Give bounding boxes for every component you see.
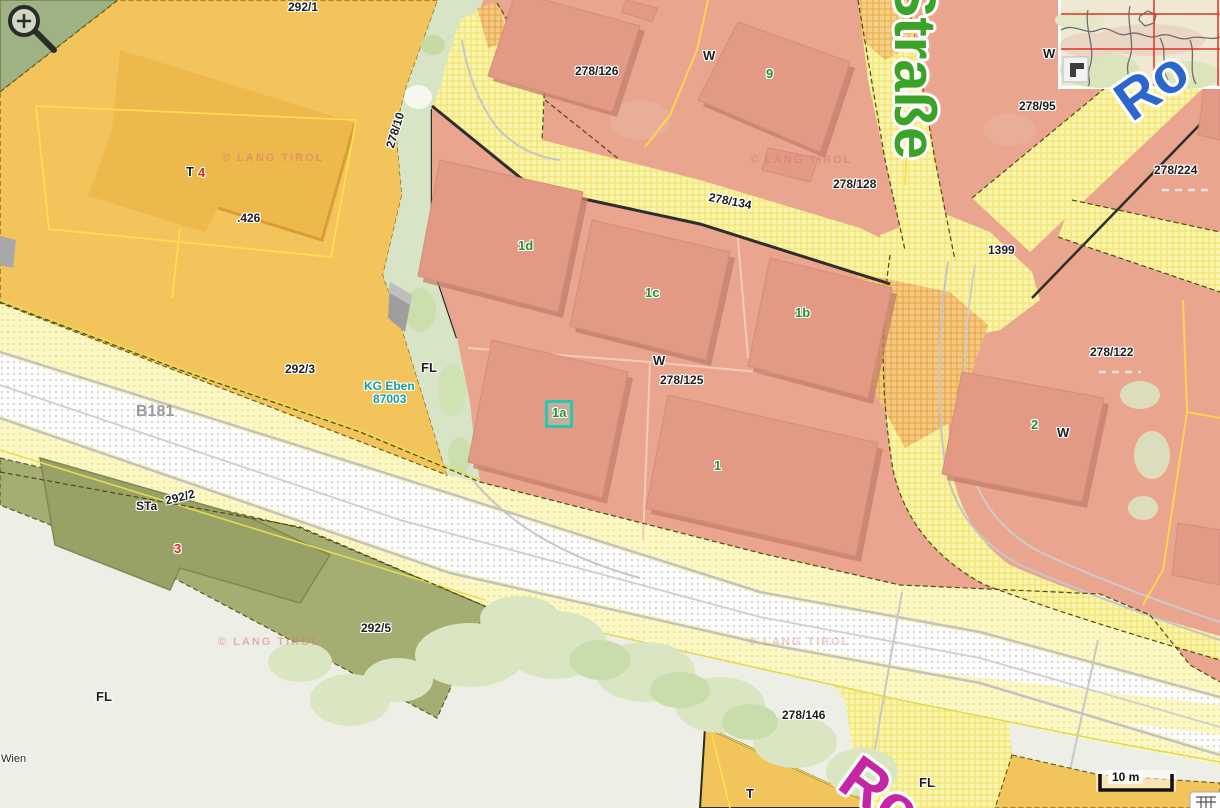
house-number-1a: 1a	[552, 406, 566, 420]
house-number-2: 2	[1031, 418, 1038, 432]
usage-label-w-1: W	[703, 49, 715, 63]
usage-label-w-3: W	[653, 354, 665, 368]
parcel-label-278-224: 278/224	[1154, 164, 1197, 177]
usage-label-t-2: T	[746, 787, 754, 801]
kg-label-code: 87003	[373, 393, 406, 406]
parcel-label-292-5: 292/5	[361, 622, 391, 635]
street-label-green: r Straße	[881, 0, 948, 159]
usage-label-fl-3: FL	[919, 776, 935, 790]
house-number-1b: 1b	[795, 306, 810, 320]
parcel-label-426: .426	[237, 212, 260, 225]
house-number-4: 4	[198, 166, 205, 180]
road-label-b181: B181	[136, 404, 174, 421]
usage-label-w-4: W	[1057, 426, 1069, 440]
house-number-1d: 1d	[518, 239, 533, 253]
watermark-4: © LANG TIROL	[748, 637, 850, 649]
map-viewport[interactable]: r Straße Ro Ro 292/1 T 4 .426 © LANG TIR…	[0, 0, 1220, 808]
parcel-label-1399: 1399	[988, 244, 1015, 257]
usage-label-fl-1: FL	[421, 361, 437, 375]
map-canvas[interactable]	[0, 0, 1220, 808]
parcel-label-278-122: 278/122	[1090, 346, 1133, 359]
parcel-label-278-95: 278/95	[1019, 100, 1056, 113]
house-number-9: 9	[766, 67, 773, 81]
watermark-2: © LANG TIROL	[750, 155, 852, 167]
parcel-label-278-125: 278/125	[660, 374, 703, 387]
usage-label-w-2: W	[1043, 47, 1055, 61]
house-number-3: 3	[174, 542, 181, 556]
grid-tool-button[interactable]	[1190, 792, 1220, 808]
parcel-label-278-126: 278/126	[575, 65, 618, 78]
usage-label-fl-2: FL	[96, 690, 112, 704]
watermark-1: © LANG TIROL	[222, 153, 324, 165]
parcel-label-292-3: 292/3	[285, 363, 315, 376]
attribution-wien: Wien	[1, 754, 26, 766]
inset-arrow-button[interactable]	[1063, 57, 1088, 82]
scale-bar-label: 10 m	[1108, 770, 1143, 784]
parcel-label-292-1: 292/1	[288, 1, 318, 14]
kg-label-name: KG Eben	[364, 380, 415, 393]
usage-label-sta: STa	[136, 500, 157, 513]
house-number-1: 1	[714, 459, 721, 473]
parcel-label-278-128: 278/128	[833, 178, 876, 191]
house-number-1c: 1c	[645, 286, 659, 300]
label-t-top: T	[186, 165, 194, 179]
watermark-3: © LANG TIROL	[218, 637, 320, 649]
parcel-label-278-146: 278/146	[782, 709, 825, 722]
